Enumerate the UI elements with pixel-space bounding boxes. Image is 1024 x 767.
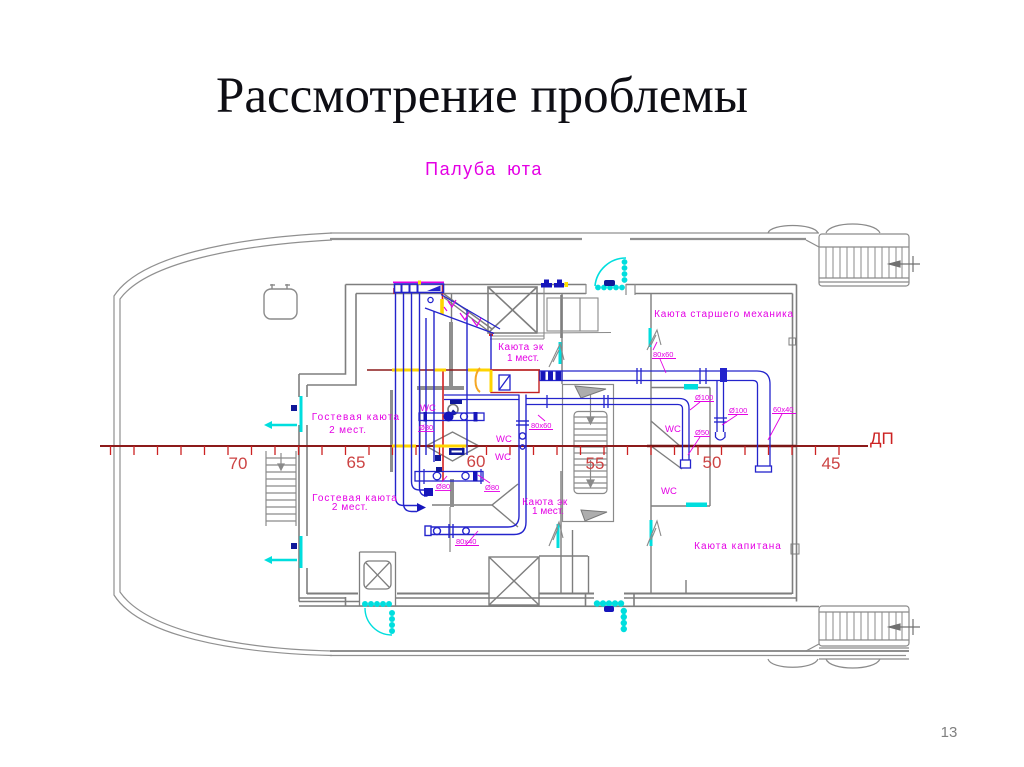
svg-text:Ø100: Ø100 — [695, 393, 713, 402]
svg-text:80x60: 80x60 — [531, 421, 551, 430]
svg-text:Гостевая каюта: Гостевая каюта — [312, 412, 401, 423]
svg-text:2 мест.: 2 мест. — [332, 502, 368, 513]
svg-text:ДП: ДП — [870, 429, 894, 448]
svg-text:2 мест.: 2 мест. — [329, 425, 367, 436]
svg-text:Ø100: Ø100 — [729, 406, 747, 415]
svg-text:45: 45 — [822, 454, 841, 473]
svg-text:Каюта капитана: Каюта капитана — [694, 541, 782, 552]
svg-text:70: 70 — [229, 454, 248, 473]
svg-text:80x60: 80x60 — [653, 350, 673, 359]
svg-text:1 мест.: 1 мест. — [532, 506, 564, 517]
svg-text:Ø80: Ø80 — [419, 423, 433, 432]
svg-text:60x40: 60x40 — [773, 405, 793, 414]
svg-text:WC: WC — [665, 424, 681, 435]
svg-text:WC: WC — [661, 486, 677, 497]
svg-text:50: 50 — [703, 453, 722, 472]
svg-text:1 мест.: 1 мест. — [507, 353, 539, 364]
svg-text:13: 13 — [941, 724, 958, 741]
svg-text:Ø80: Ø80 — [485, 483, 499, 492]
svg-text:WC: WC — [495, 452, 511, 463]
svg-text:65: 65 — [347, 453, 366, 472]
svg-text:Палуба юта: Палуба юта — [425, 159, 543, 179]
svg-text:Каюта эк: Каюта эк — [498, 342, 544, 353]
svg-text:60: 60 — [467, 452, 486, 471]
svg-text:Каюта старшего механика: Каюта старшего механика — [654, 309, 794, 320]
svg-text:Ø50: Ø50 — [695, 428, 709, 437]
svg-text:WC: WC — [496, 434, 512, 445]
svg-text:55: 55 — [586, 454, 605, 473]
svg-text:Ø80: Ø80 — [436, 482, 450, 491]
svg-text:WC: WC — [420, 403, 436, 414]
